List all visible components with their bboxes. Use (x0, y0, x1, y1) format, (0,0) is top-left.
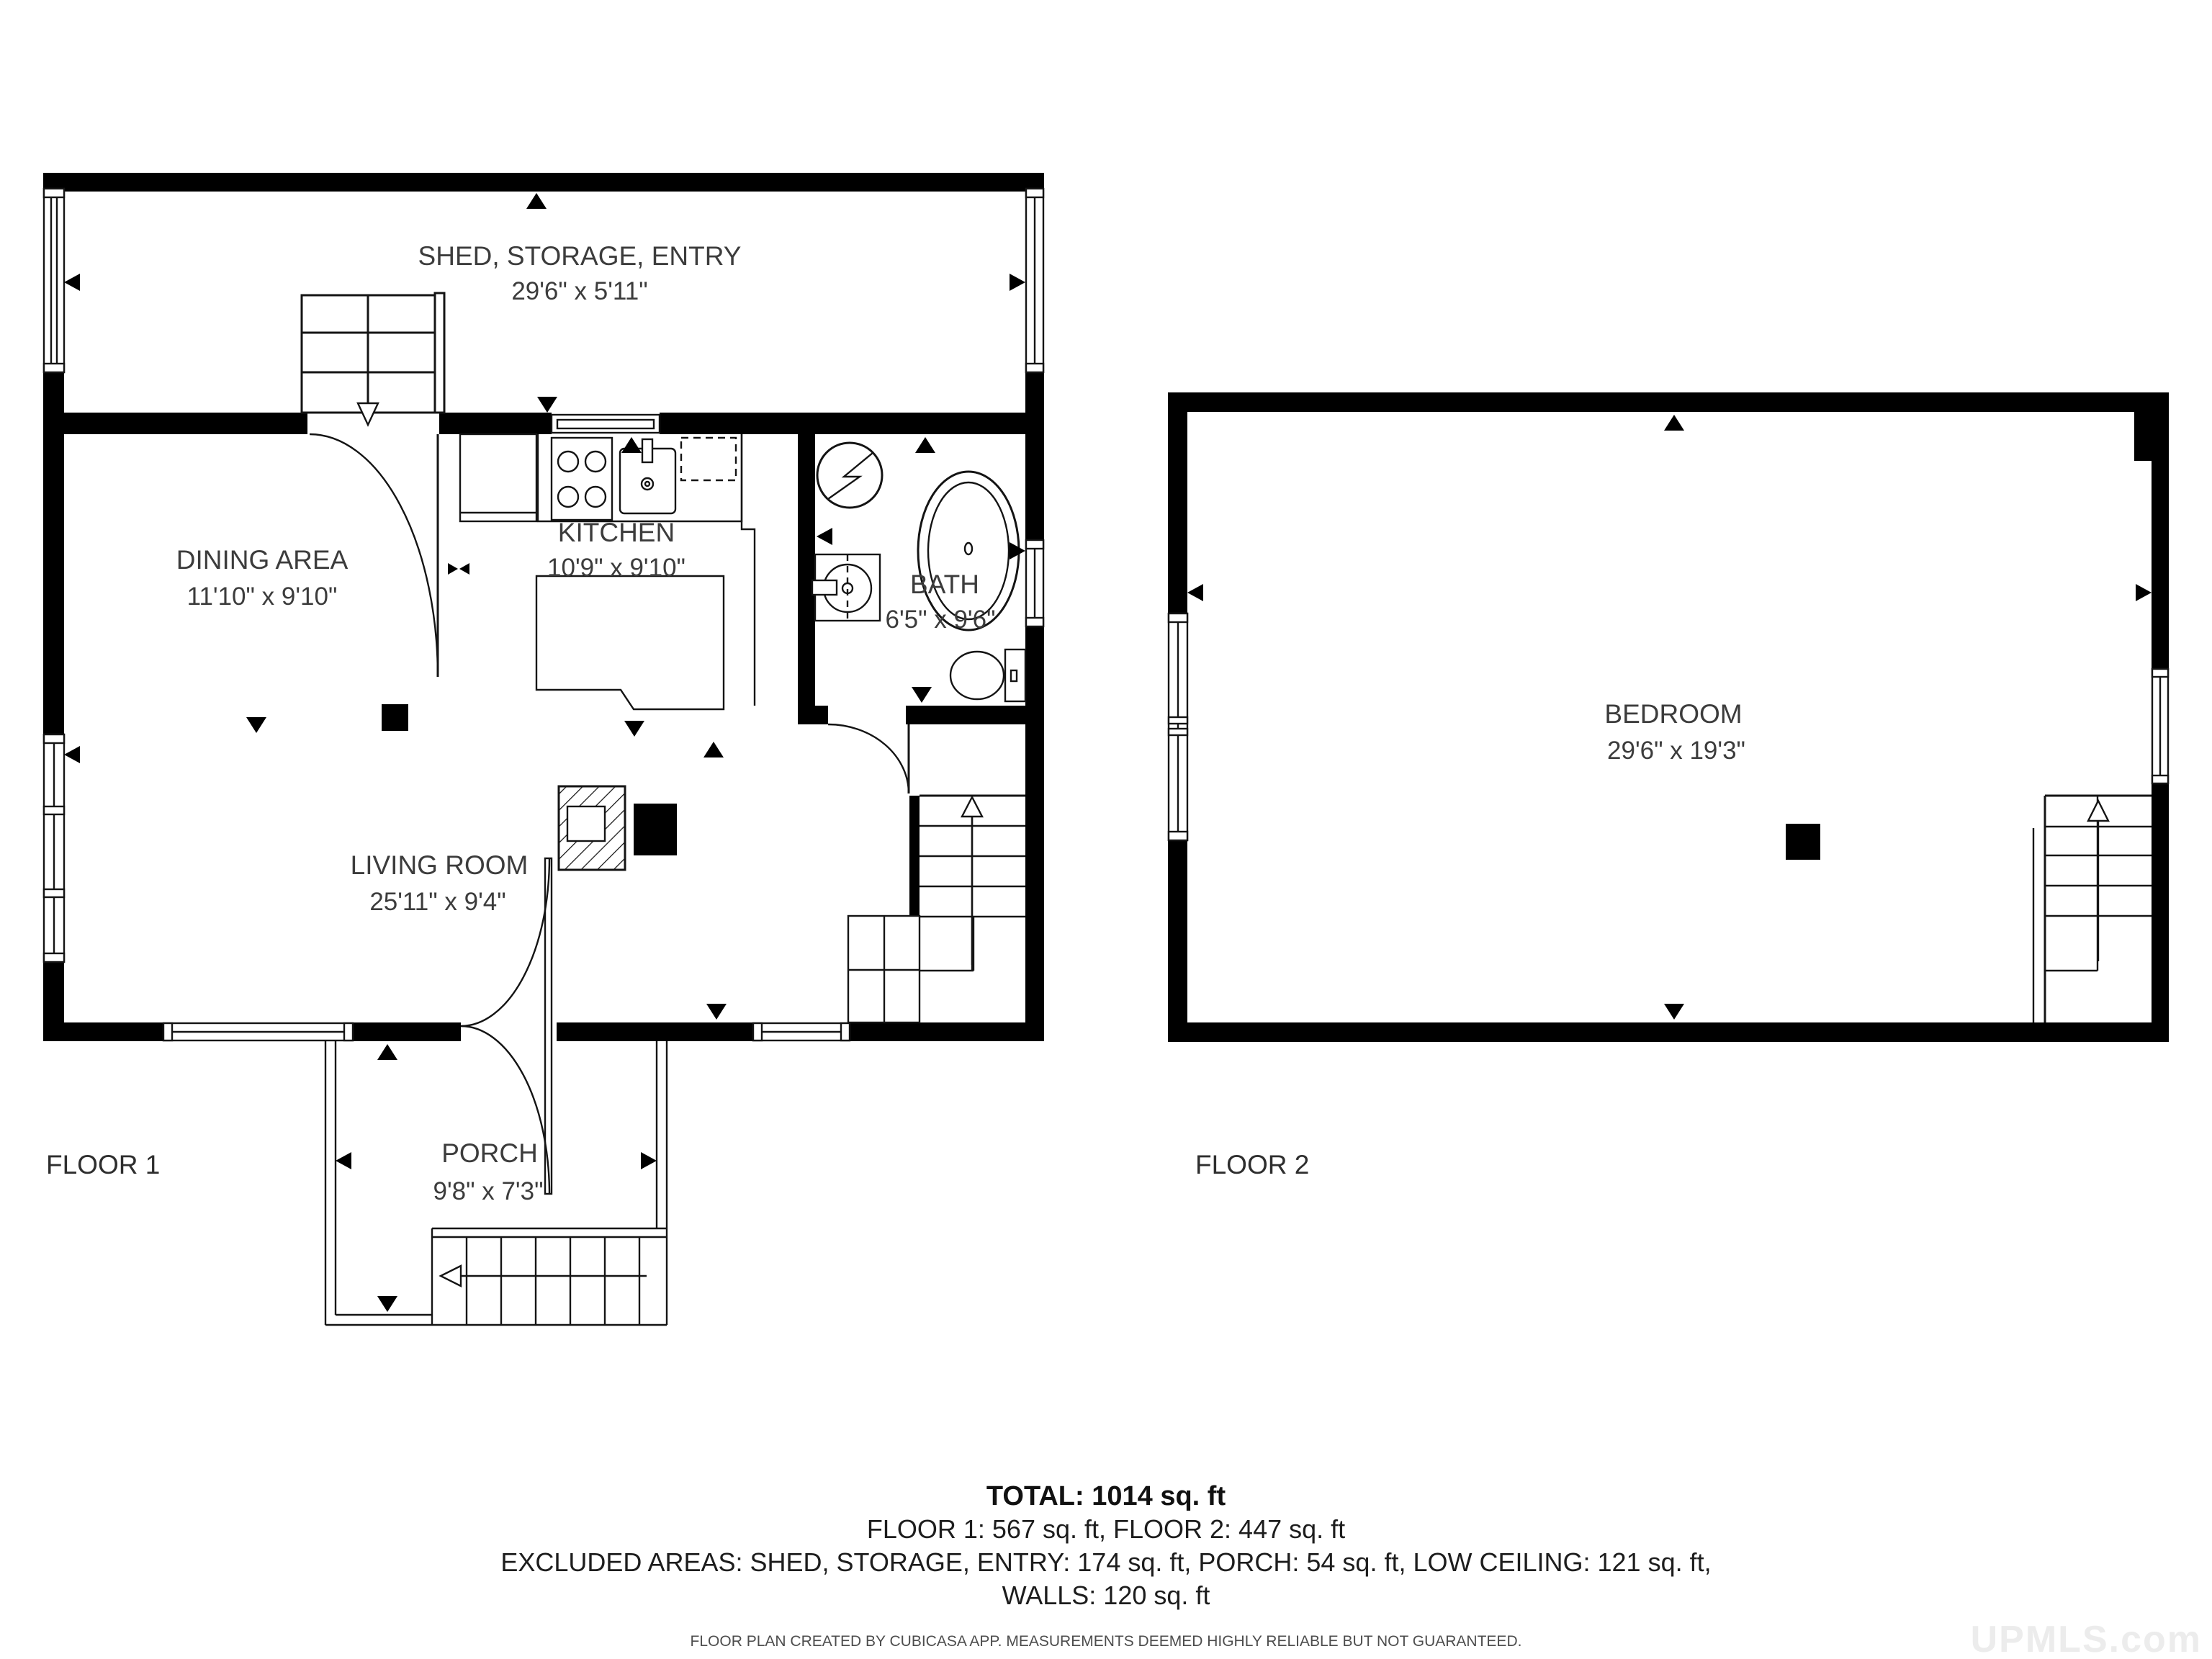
living-room-label: LIVING ROOM (351, 850, 529, 880)
bedroom-label: BEDROOM (1604, 699, 1742, 729)
porch-dims: 9'8" x 7'3" (433, 1177, 543, 1205)
dining-left-window (44, 734, 64, 962)
porch-label: PORCH (441, 1138, 538, 1168)
summary-floors: FLOOR 1: 567 sq. ft, FLOOR 2: 447 sq. ft (867, 1514, 1345, 1544)
kitchen-pass-window (552, 415, 660, 433)
summary-excluded: EXCLUDED AREAS: SHED, STORAGE, ENTRY: 17… (500, 1547, 1711, 1577)
bath-label: BATH (910, 570, 979, 599)
floor1-label: FLOOR 1 (46, 1150, 160, 1179)
stairs-floor2 (2033, 796, 2152, 1022)
stairs-floor2-up-arrow (2088, 801, 2108, 821)
floor2-plan: BEDROOM 29'6" x 19'3" FLOOR 2 (1168, 392, 2169, 1179)
floor-plan-canvas: SHED, STORAGE, ENTRY 29'6" x 5'11" KITCH… (0, 0, 2212, 1659)
living-room-dims: 25'11" x 9'4" (369, 888, 505, 916)
bath-dims: 6'5" x 9'6" (885, 606, 995, 634)
kitchen-island-table (536, 576, 724, 709)
floor1-plan: SHED, STORAGE, ENTRY 29'6" x 5'11" KITCH… (43, 173, 1044, 1325)
living-room-window-right (753, 1023, 850, 1040)
summary-walls: WALLS: 120 sq. ft (1002, 1581, 1210, 1610)
dining-area-dims: 11'10" x 9'10" (187, 583, 338, 611)
kitchen-boundary-line (742, 434, 755, 706)
toilet (950, 649, 1025, 701)
water-heater (817, 443, 882, 508)
bath-right-window (1026, 540, 1043, 626)
disclaimer-text: FLOOR PLAN CREATED BY CUBICASA APP. MEAS… (691, 1633, 1522, 1650)
watermark: UPMLS.com (1971, 1619, 2202, 1659)
porch-stairs-arrow (441, 1266, 461, 1286)
shed-stairs-down-arrow (358, 403, 378, 425)
floor-plan-page: SHED, STORAGE, ENTRY 29'6" x 5'11" KITCH… (0, 0, 2212, 1659)
shed-stairs (302, 293, 444, 425)
floor2-label: FLOOR 2 (1195, 1150, 1309, 1179)
summary-total: TOTAL: 1014 sq. ft (986, 1481, 1226, 1511)
porch-stairs (432, 1228, 667, 1325)
fireplace (559, 786, 625, 870)
chimney-floor2 (1786, 824, 1820, 860)
kitchen-stove (552, 438, 612, 520)
shed-left-window (44, 189, 64, 372)
shed-right-window (1026, 189, 1043, 372)
bedroom-left-window (1169, 613, 1187, 840)
living-room-window (163, 1023, 353, 1040)
shed-room-label: SHED, STORAGE, ENTRY (418, 241, 742, 271)
kitchen-dims: 10'9" x 9'10" (547, 554, 685, 582)
bedroom-right-window (2152, 669, 2168, 783)
shed-room-dims: 29'6" x 5'11" (511, 277, 647, 305)
stairs-floor1-up-arrow (962, 797, 982, 817)
flue-square-dining (382, 704, 408, 731)
chimney-floor1 (634, 804, 677, 855)
area-summary: TOTAL: 1014 sq. ft FLOOR 1: 567 sq. ft, … (500, 1481, 1711, 1610)
bedroom-dims: 29'6" x 19'3" (1607, 737, 1745, 765)
stairs-floor1 (848, 796, 1025, 1022)
dining-area-label: DINING AREA (176, 545, 349, 575)
bath-door (828, 724, 909, 793)
kitchen-dishwasher (681, 438, 736, 480)
kitchen-label: KITCHEN (558, 518, 675, 547)
bath-sink (812, 554, 880, 621)
